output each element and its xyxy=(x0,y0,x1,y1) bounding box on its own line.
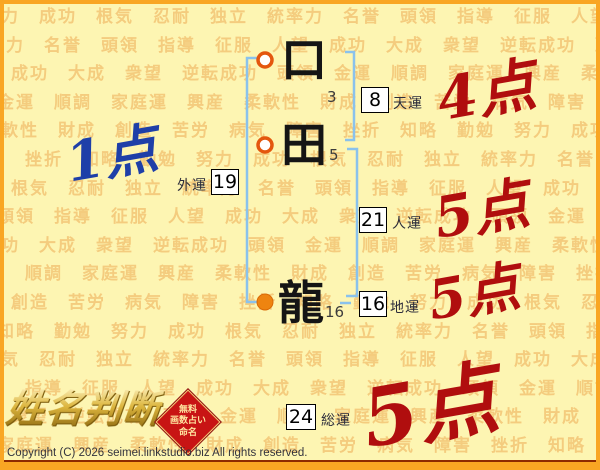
person-luck-bracket xyxy=(346,149,357,296)
seal-line-2: 画数占い xyxy=(170,416,206,427)
free-naming-seal: 無料 画数占い 命名 xyxy=(158,392,218,452)
seal-line-3: 命名 xyxy=(179,428,197,439)
outer-luck-bracket xyxy=(247,58,257,302)
surname-char-1: 口 xyxy=(281,37,327,83)
surname-char1-marker-icon xyxy=(258,53,272,67)
heaven-luck-score: 4点 xyxy=(433,55,540,129)
ground-luck-value-box: 16 xyxy=(359,291,387,317)
person-luck-value-box: 21 xyxy=(359,207,387,233)
heaven-luck-label: 天運 xyxy=(393,93,423,113)
givenname-char-strokes: 16 xyxy=(325,303,344,321)
givenname-char: 龍 xyxy=(278,280,324,326)
outer-luck-label: 外運 xyxy=(177,175,207,195)
site-logo[interactable]: 姓名判断 xyxy=(4,386,165,432)
seimei-result-page: 努力 成功 根気 忍耐 独立 統率力 名誉 頭領 指導 征服 人望 成功 大成 … xyxy=(0,0,600,470)
person-luck-label: 人運 xyxy=(392,213,422,233)
ground-luck-score: 5点 xyxy=(424,258,524,327)
ground-luck-label: 地運 xyxy=(390,297,420,317)
heaven-luck-value-box: 8 xyxy=(361,87,389,113)
surname-char-2: 田 xyxy=(281,122,327,168)
outer-luck-score: 1点 xyxy=(62,120,162,189)
total-luck-score: 5点 xyxy=(356,357,504,459)
seal-line-1: 無料 xyxy=(179,405,197,416)
outer-luck-value-box: 19 xyxy=(211,169,239,195)
surname-char-2-strokes: 5 xyxy=(329,146,339,164)
seal-text: 無料 画数占い 命名 xyxy=(158,392,218,452)
copyright-text: Copyright (C) 2026 seimei.linkstudio.biz… xyxy=(7,447,307,459)
givenname-char-marker-icon xyxy=(257,294,273,310)
surname-char2-marker-icon xyxy=(258,138,272,152)
surname-char-1-strokes: 3 xyxy=(327,88,337,106)
total-luck-label: 総運 xyxy=(321,410,351,430)
total-luck-value-box: 24 xyxy=(286,404,316,430)
heaven-luck-bracket xyxy=(345,52,354,140)
person-luck-score: 5点 xyxy=(430,175,533,247)
